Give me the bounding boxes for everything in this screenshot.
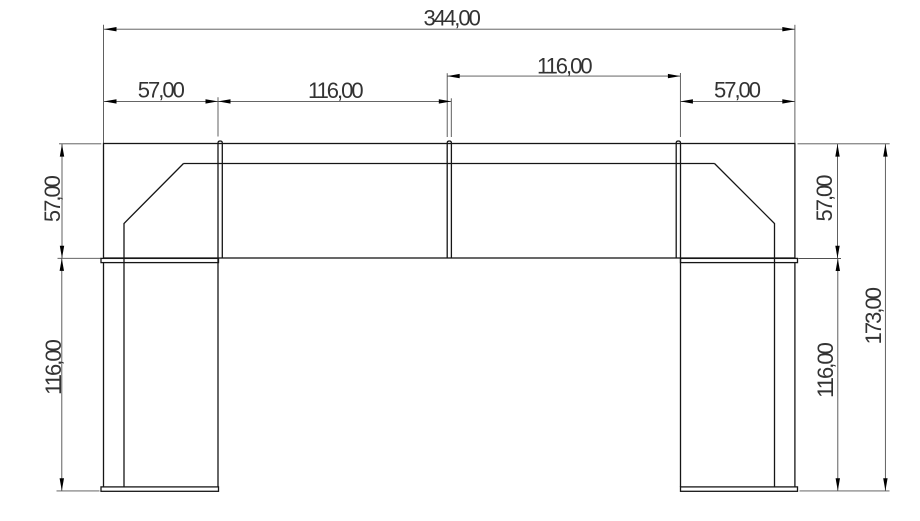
svg-text:57,00: 57,00 [812,175,837,222]
svg-text:344,00: 344,00 [424,6,481,31]
svg-text:116,00: 116,00 [537,54,592,79]
svg-text:57,00: 57,00 [714,78,761,103]
svg-text:116,00: 116,00 [308,78,363,103]
svg-text:173,00: 173,00 [861,287,886,344]
svg-text:116,00: 116,00 [41,339,66,394]
svg-text:57,00: 57,00 [138,78,185,103]
svg-text:116,00: 116,00 [813,342,838,397]
svg-text:57,00: 57,00 [40,175,65,222]
